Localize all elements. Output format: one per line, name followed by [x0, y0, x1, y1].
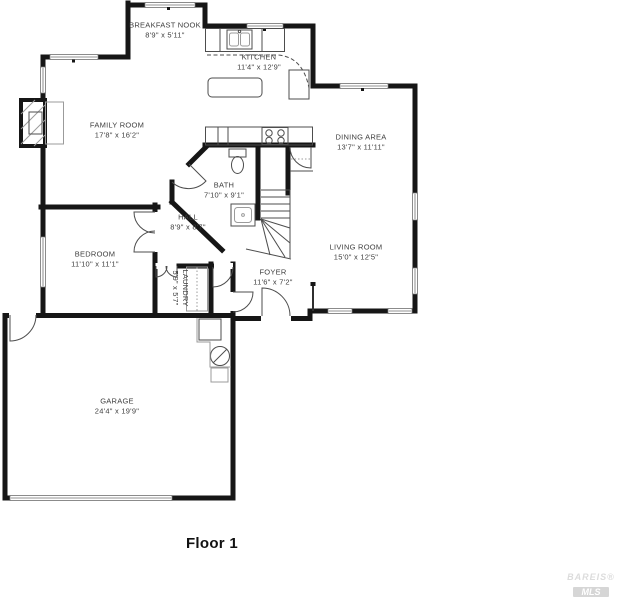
- floorplan-canvas: BREAKFAST NOOK8'9" x 5'11"KITCHEN11'4" x…: [0, 0, 622, 600]
- floor-title: Floor 1: [132, 535, 292, 552]
- watermark-logo: BAREIS® MLS: [562, 572, 620, 600]
- floorplan-svg: [0, 0, 622, 600]
- watermark-mls-badge: MLS: [573, 587, 609, 597]
- watermark-brand: BAREIS®: [562, 572, 620, 582]
